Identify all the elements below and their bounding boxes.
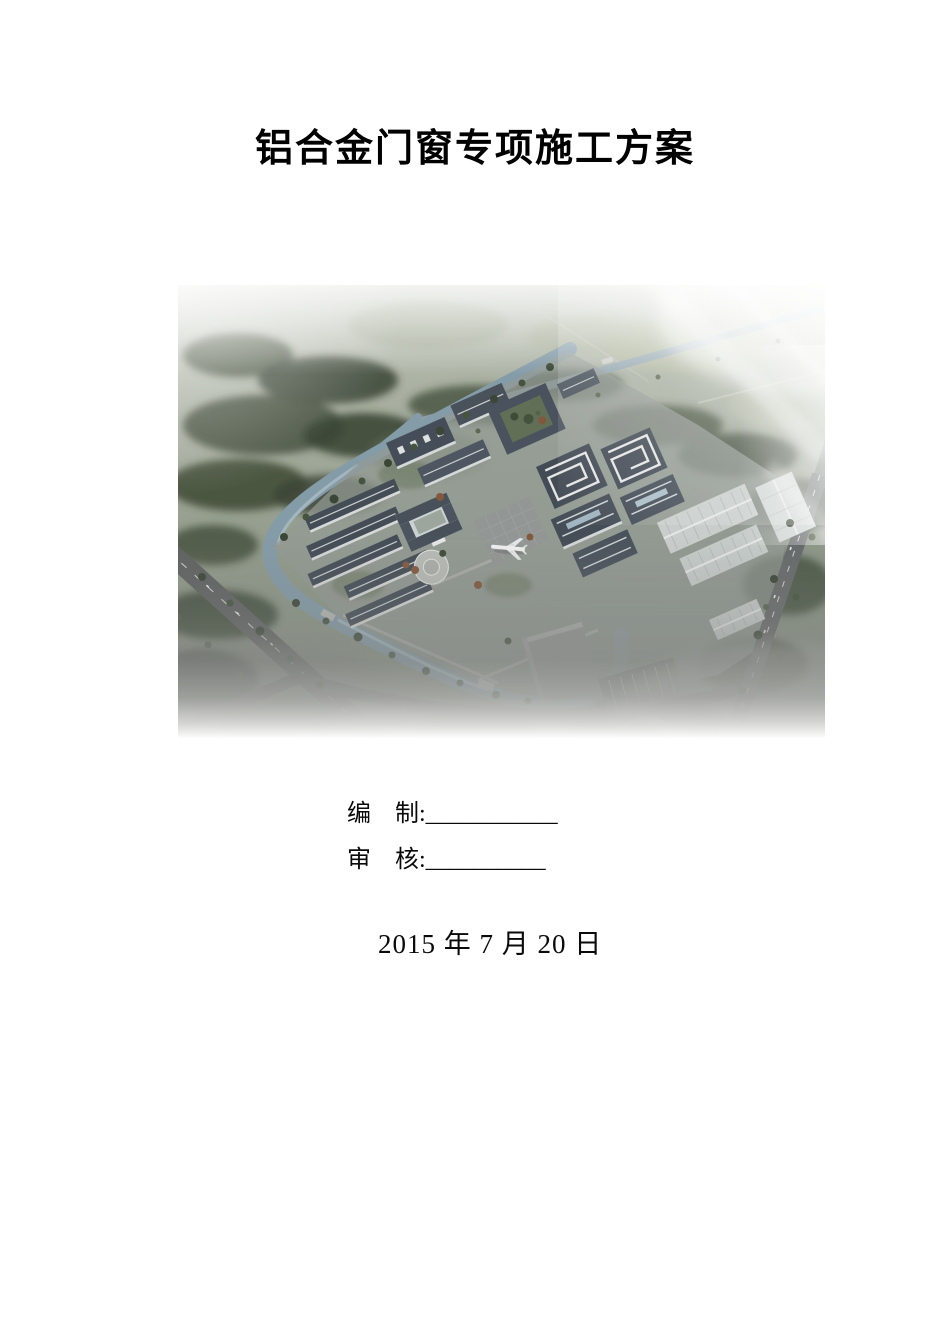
document-page: 铝合金门窗专项施工方案 xyxy=(0,0,950,1344)
document-title: 铝合金门窗专项施工方案 xyxy=(0,126,950,172)
reviewed-by-label: 审 核: xyxy=(347,847,426,873)
signature-block: 编 制:___________ 审 核:__________ xyxy=(347,791,558,883)
reviewed-by-blank: __________ xyxy=(426,847,546,873)
prepared-by-label: 编 制: xyxy=(347,801,426,827)
document-date: 2015 年 7 月 20 日 xyxy=(378,926,602,962)
reviewed-by-line: 审 核:__________ xyxy=(347,837,558,883)
prepared-by-line: 编 制:___________ xyxy=(347,791,558,837)
aerial-rendering-image xyxy=(178,285,825,738)
aerial-rendering-figure xyxy=(178,285,825,738)
mist-overlays xyxy=(178,285,825,738)
prepared-by-blank: ___________ xyxy=(426,801,558,827)
